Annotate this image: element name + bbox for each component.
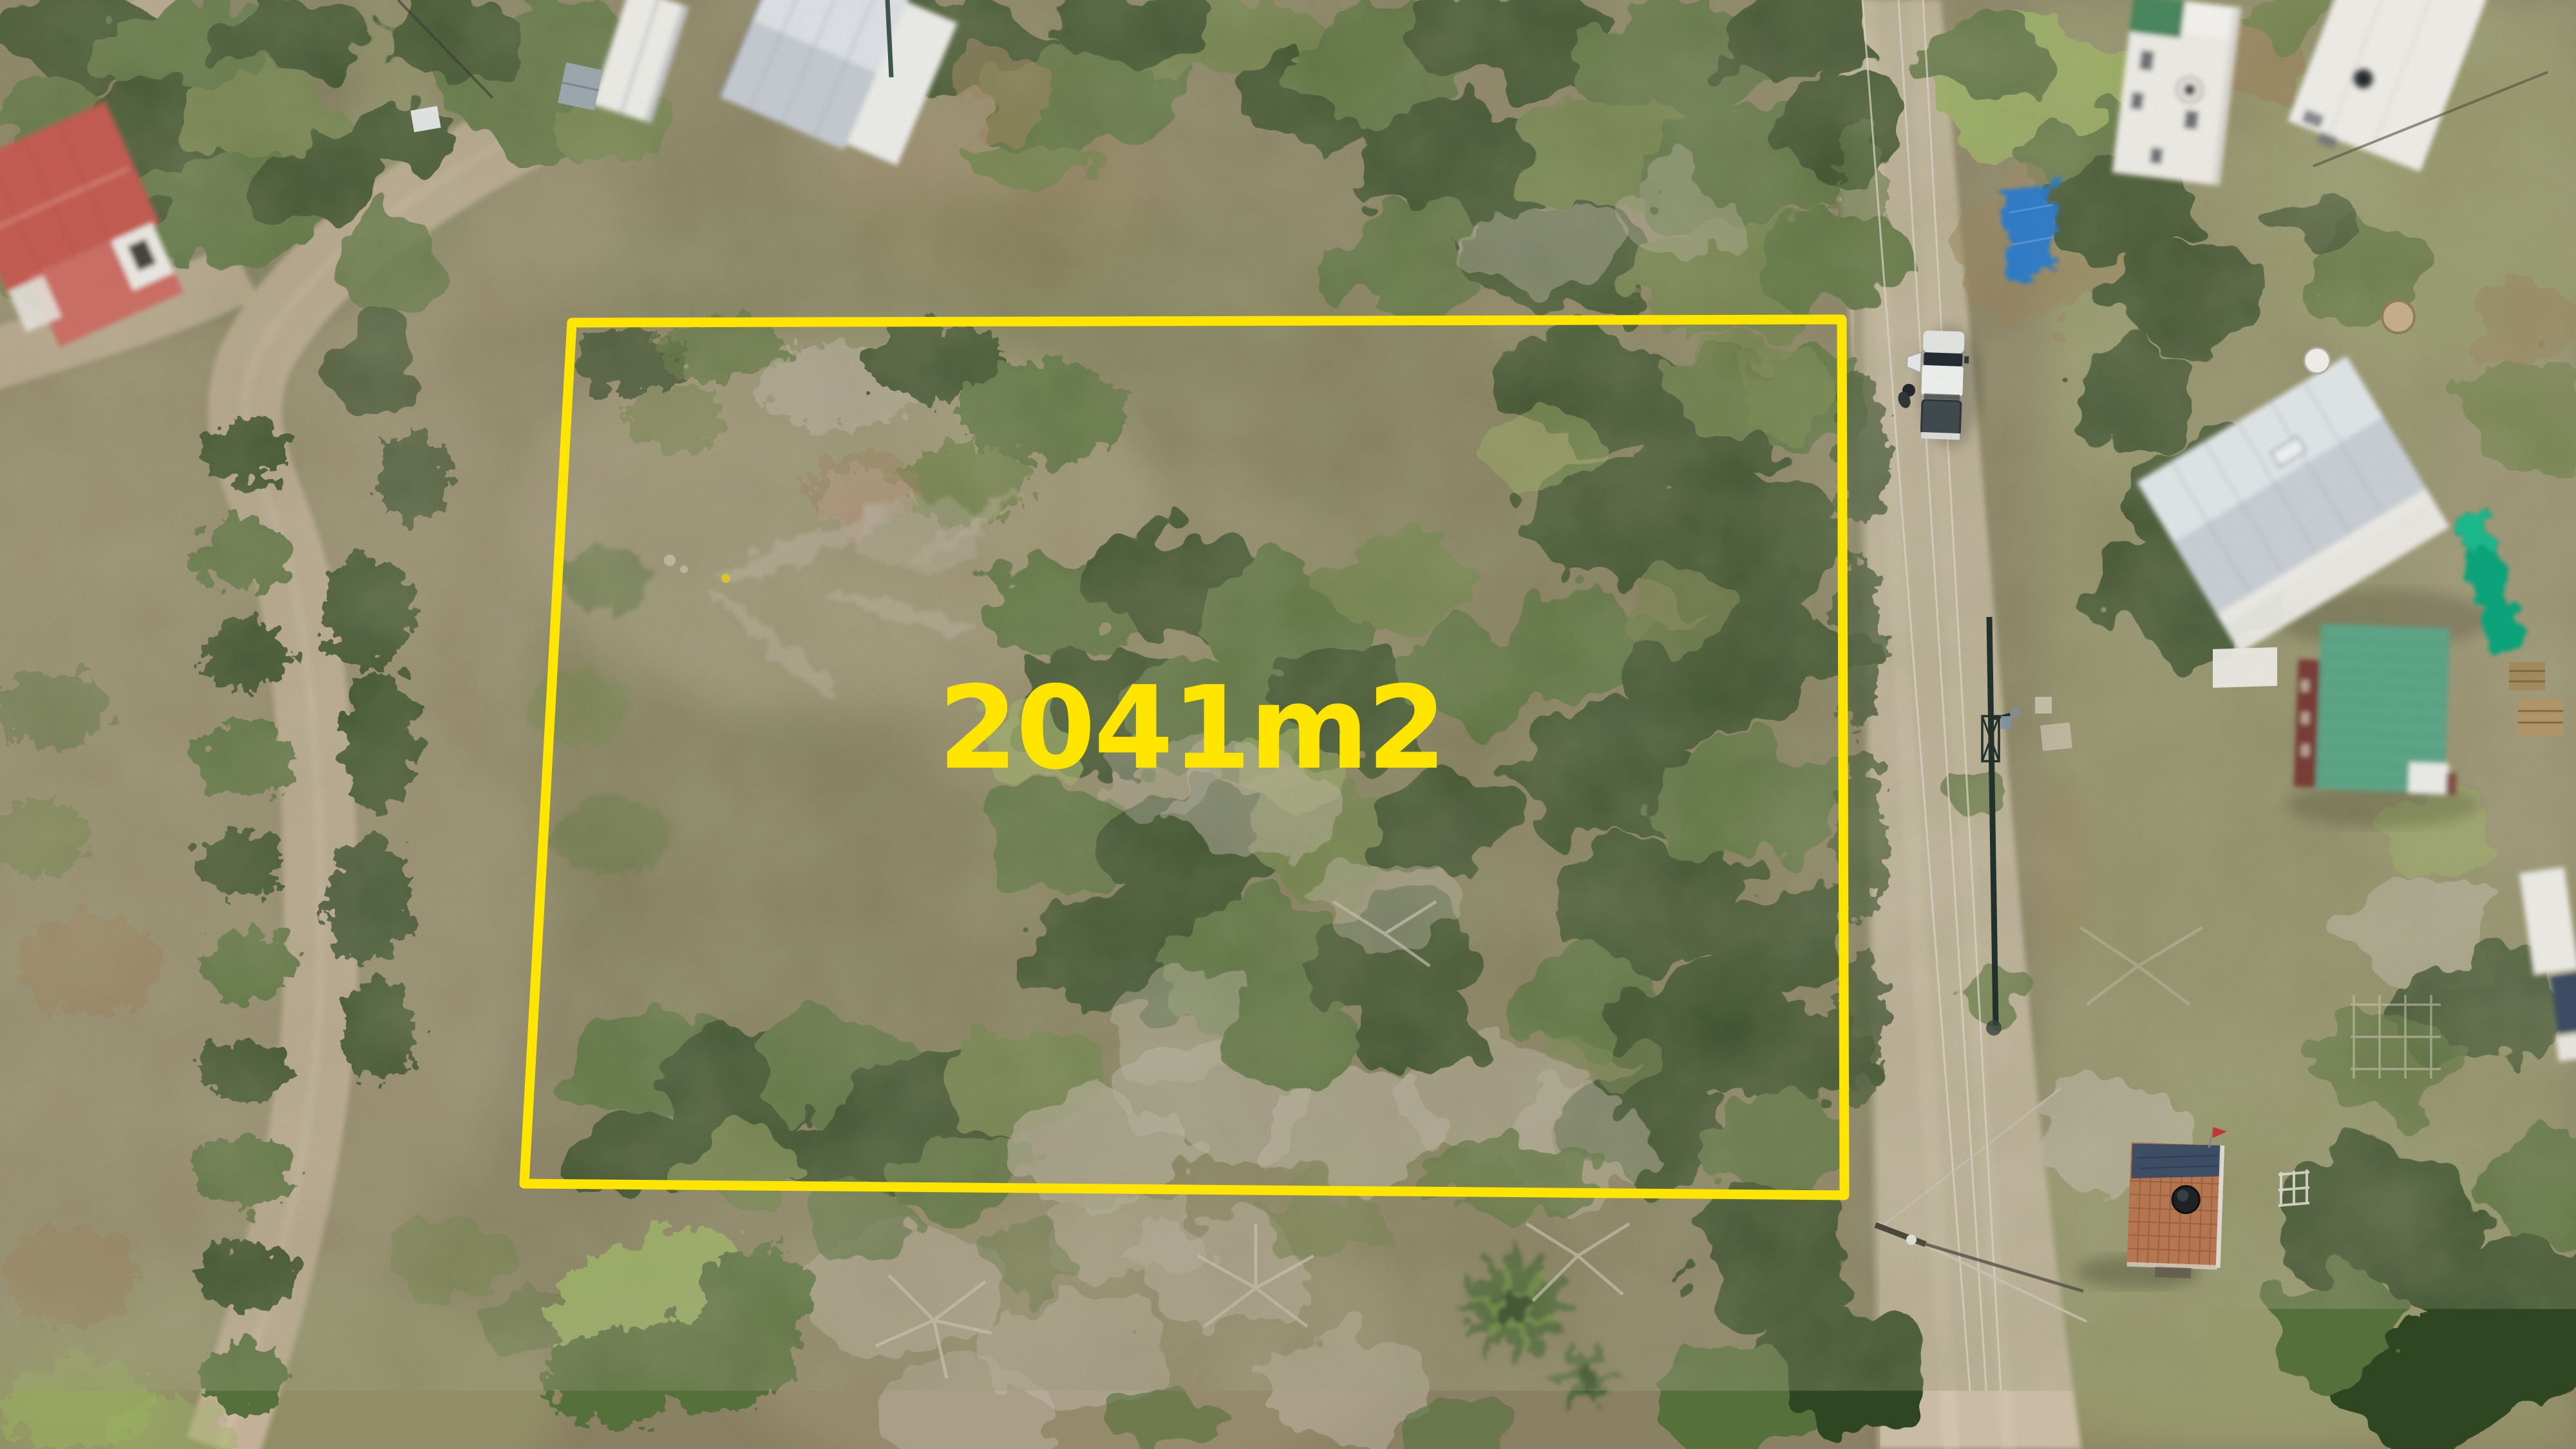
area-label: 2041m2 [938,661,1445,795]
aerial-photo: 2041m2 [0,0,2576,1449]
aerial-photo-canvas: 2041m2 [0,0,2576,1449]
